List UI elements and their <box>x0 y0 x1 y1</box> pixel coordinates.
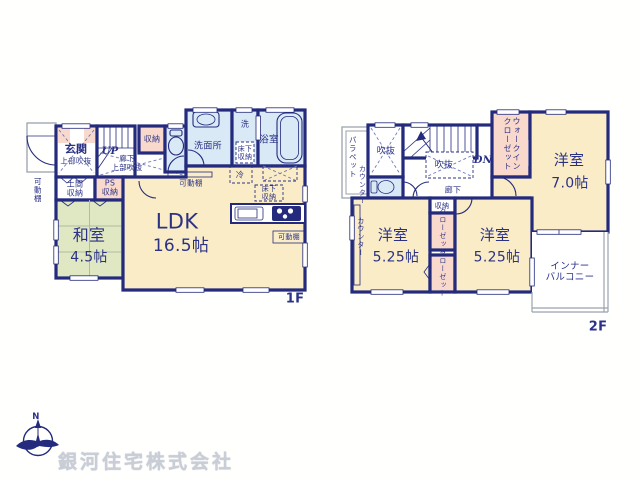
label-inner-balcony: インナー バルコニー <box>546 261 595 283</box>
label-wic: ウォークイン クローゼット <box>502 117 520 171</box>
label-counter-b: カウンター <box>356 217 364 257</box>
label-bed-b: 洋室 <box>480 227 511 245</box>
label-yukashita-b: 床下 収納 <box>262 185 277 202</box>
room-toilet-2f <box>368 177 417 198</box>
label-doma: 土間 収納 <box>67 180 84 199</box>
label-counter-a: カウンター <box>358 165 366 205</box>
label-yoshitsu7: 洋室 <box>554 152 585 170</box>
label-dn: DN <box>474 155 492 167</box>
label-void-a: 吹抜 <box>377 147 396 158</box>
label-yokushitsu: 浴室 <box>259 134 279 145</box>
label-washitsu-size: 4.5帖 <box>70 250 107 267</box>
label-genkan: 玄関 <box>65 144 88 157</box>
compass-n-label: N <box>32 412 39 422</box>
label-roka-1f: 廊下 上部吹抜 <box>111 155 142 173</box>
label-floor-2f: 2F <box>589 319 608 334</box>
label-kadodana-left: 可動棚 <box>33 177 41 203</box>
label-floor-1f: 1F <box>286 291 305 306</box>
label-yoshitsu7-size: 7.0帖 <box>551 176 588 193</box>
label-roka-2f: 廊下 <box>445 185 462 194</box>
company-name: 銀河住宅株式会社 <box>58 447 234 474</box>
label-ps: PS 収納 <box>102 179 119 198</box>
label-rei: 冷 <box>236 170 244 179</box>
floorplan-page: 可動棚 玄関 上部吹抜 UP 収納 廊下 上部吹抜 土間 収納 PS 収納 洗面… <box>0 0 640 480</box>
label-shuno-1f: 収納 <box>144 134 161 143</box>
room-toilet-1f <box>165 126 186 172</box>
label-kadodana-mid: 可動棚 <box>179 180 202 189</box>
label-senmenjo: 洗面所 <box>194 142 222 153</box>
porch <box>27 123 56 172</box>
label-kadodana-kitchen: 可動棚 <box>278 233 300 241</box>
room-senmenjo <box>186 110 232 166</box>
label-ldk-size: 16.5帖 <box>153 236 209 256</box>
label-bed-a: 洋室 <box>378 227 409 245</box>
label-washitsu: 和室 <box>73 227 106 246</box>
label-bed-b-size: 5.25帖 <box>474 250 521 267</box>
room-bed-b <box>455 198 532 292</box>
label-void-b: 吹抜 <box>435 161 454 172</box>
label-parapet: パラペット <box>348 136 356 179</box>
label-yukashita-a: 床下 収納 <box>238 145 253 162</box>
label-bed-a-size: 5.25帖 <box>373 250 420 267</box>
compass <box>16 419 59 456</box>
label-sen: 洗 <box>241 119 249 128</box>
label-closet-b: クローゼット <box>438 249 446 297</box>
label-genkan-sub: 上部吹抜 <box>60 158 91 167</box>
label-ldk: LDK <box>156 210 199 235</box>
